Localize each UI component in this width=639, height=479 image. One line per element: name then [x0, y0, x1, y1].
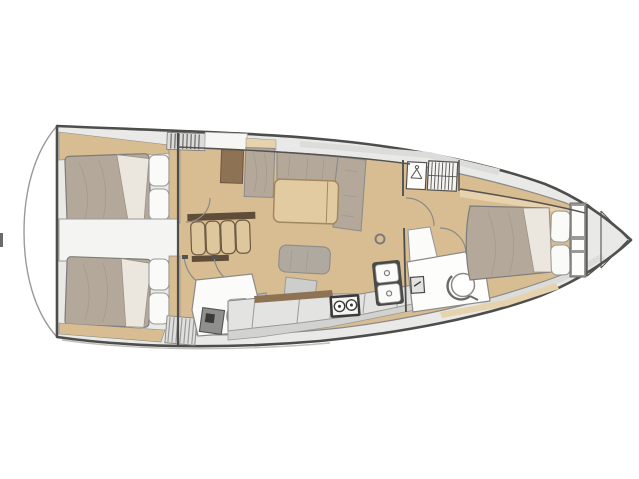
door-hinge [182, 255, 188, 259]
sink-basin [375, 263, 399, 283]
floor-plan-canvas [0, 0, 639, 479]
swim-platform [0, 126, 57, 337]
yacht-floor-plan [0, 0, 639, 479]
settee-back [277, 152, 338, 183]
cabinet-taupe [244, 148, 275, 198]
engine-compartment [59, 219, 178, 261]
control-panel [410, 277, 424, 294]
lockers [406, 160, 457, 192]
pillow [149, 293, 169, 324]
cabinet-dark-wood [220, 150, 243, 184]
step-tread [191, 222, 206, 255]
salon-table [273, 179, 338, 224]
sink-unit [372, 260, 404, 307]
salon-bench [278, 245, 330, 275]
door-hinge [212, 255, 218, 259]
step-tread [206, 221, 221, 254]
shelf-compartment [572, 240, 584, 250]
stern-platform-mark [0, 233, 3, 247]
step-tread [221, 220, 236, 253]
stove [329, 294, 360, 318]
pillow [149, 189, 169, 220]
shower-grate [165, 316, 197, 346]
pillow [149, 259, 169, 290]
sink-basin [377, 283, 401, 303]
shelf-compartment [572, 253, 584, 275]
pillow [149, 155, 169, 186]
swim-platform-outline [24, 126, 57, 337]
shower-drain [205, 313, 215, 323]
pillow [550, 211, 570, 243]
aft-cabin-port [59, 132, 180, 224]
pillow [550, 245, 570, 276]
step-tread [236, 220, 251, 253]
